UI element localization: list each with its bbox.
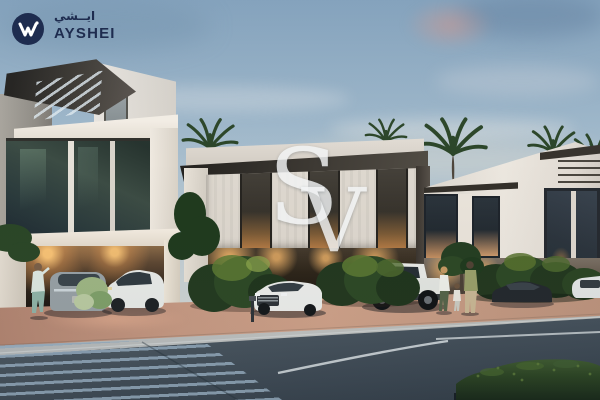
- w-monogram-icon: [12, 13, 44, 45]
- child: [453, 283, 461, 311]
- ayshei-logo: ايــشي AYSHEI: [10, 8, 210, 56]
- lane-line-2: [436, 332, 600, 339]
- sidewalk-back-edge: [0, 314, 600, 345]
- watermark-letter-v: V: [302, 186, 366, 256]
- brand-name-arabic: ايــشي: [54, 9, 95, 23]
- far-left-fronds: [0, 224, 40, 262]
- carport-plant: [74, 277, 112, 310]
- white-crossover-car: [102, 270, 166, 316]
- lane-line-1: [278, 341, 448, 373]
- crosswalk-joint: [142, 342, 238, 400]
- foreground-hedge: [454, 359, 600, 400]
- brand-name: AYSHEI: [54, 25, 116, 42]
- sv-watermark: S V: [268, 146, 368, 266]
- greenery-between-buildings: [168, 192, 220, 260]
- architectural-render: S V ايــشي AYSHEI: [0, 0, 600, 400]
